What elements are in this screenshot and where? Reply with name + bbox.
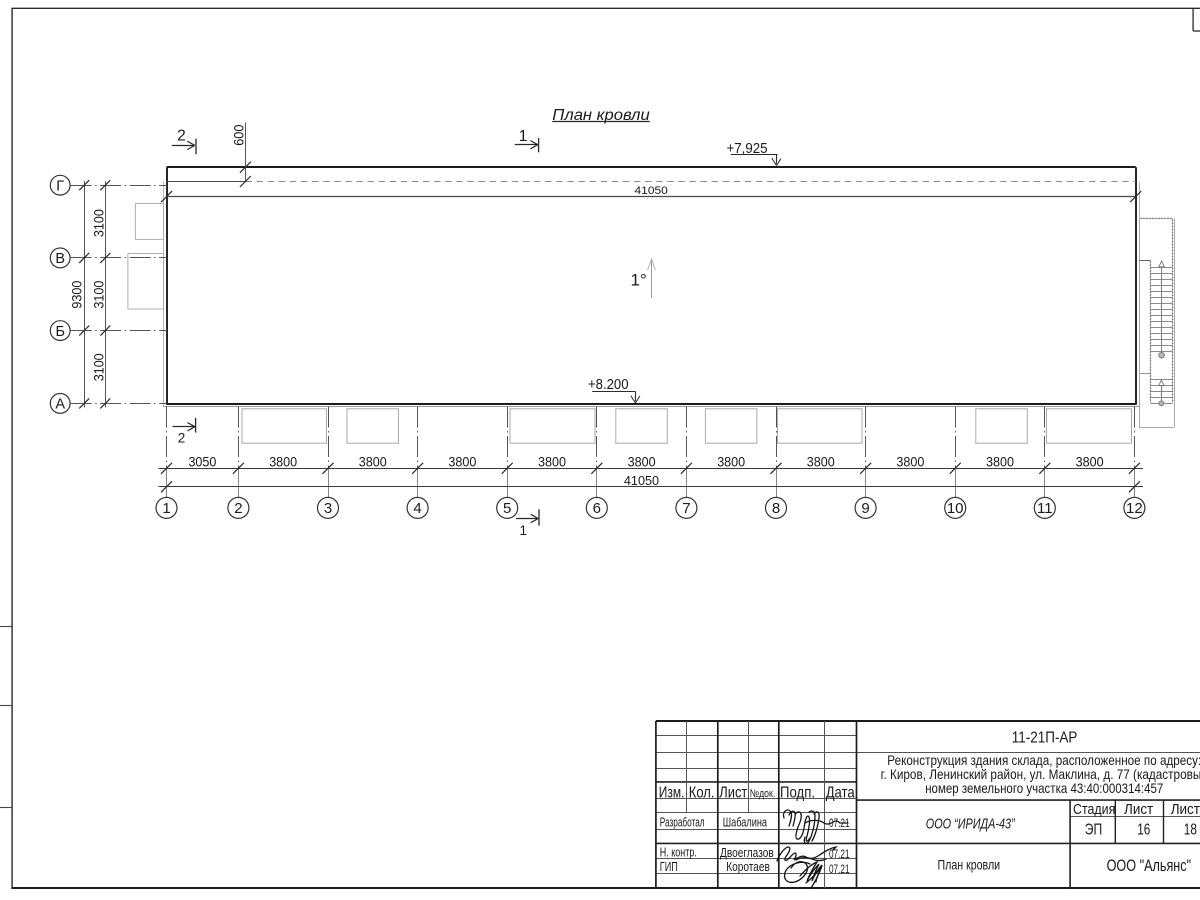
svg-text:Дата: Дата: [826, 784, 855, 801]
svg-text:4: 4: [413, 500, 421, 517]
svg-text:номер земельного участка 43:40: номер земельного участка 43:40:000314:45…: [925, 780, 1163, 796]
svg-text:ООО “ИРИДА-43”: ООО “ИРИДА-43”: [926, 816, 1016, 833]
svg-text:12: 12: [1126, 500, 1143, 517]
svg-text:Шабалина: Шабалина: [723, 815, 768, 830]
svg-text:1: 1: [519, 128, 528, 145]
svg-text:ЭП: ЭП: [1085, 821, 1103, 838]
svg-text:Кол.: Кол.: [689, 784, 715, 801]
svg-text:07.21: 07.21: [829, 864, 850, 876]
svg-text:Листов: Листов: [1171, 801, 1200, 818]
svg-text:В: В: [55, 251, 65, 267]
svg-text:3800: 3800: [538, 453, 566, 469]
svg-text:3800: 3800: [807, 453, 835, 469]
svg-text:1°: 1°: [631, 270, 647, 289]
svg-text:2: 2: [178, 431, 186, 446]
svg-text:11-21П-АР: 11-21П-АР: [1012, 730, 1078, 747]
svg-text:Стадия: Стадия: [1073, 801, 1115, 818]
svg-text:3800: 3800: [448, 453, 476, 469]
svg-text:Лист: Лист: [719, 784, 748, 801]
svg-text:Разработал: Разработал: [660, 815, 705, 830]
svg-text:№док.: №док.: [750, 788, 776, 800]
svg-text:3: 3: [324, 500, 332, 517]
svg-text:600: 600: [230, 124, 246, 145]
svg-text:6: 6: [593, 500, 601, 517]
svg-text:11: 11: [1037, 500, 1053, 517]
svg-text:9300: 9300: [68, 280, 84, 308]
svg-text:3800: 3800: [269, 453, 297, 469]
svg-text:Коротаев: Коротаев: [726, 859, 770, 874]
svg-text:18: 18: [1184, 821, 1197, 838]
svg-text:Н. контр.: Н. контр.: [660, 844, 697, 859]
svg-text:7: 7: [682, 500, 690, 517]
svg-text:2: 2: [234, 500, 242, 517]
svg-text:16: 16: [1137, 821, 1150, 838]
svg-text:07.21: 07.21: [829, 849, 850, 861]
svg-text:10: 10: [947, 500, 964, 517]
svg-text:41050: 41050: [635, 185, 668, 197]
svg-text:3800: 3800: [896, 453, 924, 469]
svg-text:3100: 3100: [91, 280, 107, 308]
svg-text:3050: 3050: [188, 453, 216, 469]
svg-text:Двоеглазов: Двоеглазов: [720, 845, 774, 860]
svg-text:План кровли: План кровли: [938, 856, 1001, 872]
svg-text:3800: 3800: [1076, 453, 1104, 469]
svg-text:ГИП: ГИП: [660, 859, 678, 874]
svg-text:07.21: 07.21: [829, 818, 850, 830]
svg-text:9: 9: [861, 500, 869, 517]
svg-text:Б: Б: [55, 324, 65, 340]
svg-text:1: 1: [162, 500, 170, 517]
svg-text:Лист: Лист: [1124, 801, 1153, 818]
svg-text:2: 2: [177, 127, 186, 144]
svg-text:А: А: [55, 397, 65, 413]
svg-text:3100: 3100: [91, 353, 107, 381]
svg-text:3800: 3800: [359, 453, 387, 469]
svg-text:+8.200: +8.200: [588, 377, 629, 393]
svg-text:3800: 3800: [717, 453, 745, 469]
svg-text:Изм.: Изм.: [659, 784, 685, 801]
svg-text:41050: 41050: [624, 473, 659, 488]
svg-text:Г: Г: [56, 178, 64, 194]
svg-text:3800: 3800: [628, 453, 656, 469]
svg-text:3100: 3100: [91, 209, 107, 237]
svg-text:ООО "Альянс": ООО "Альянс": [1107, 857, 1192, 875]
svg-text:1: 1: [520, 523, 528, 538]
svg-text:5: 5: [503, 500, 511, 517]
svg-text:3800: 3800: [986, 453, 1014, 469]
svg-text:8: 8: [772, 500, 780, 517]
svg-text:Подп.: Подп.: [780, 784, 815, 801]
